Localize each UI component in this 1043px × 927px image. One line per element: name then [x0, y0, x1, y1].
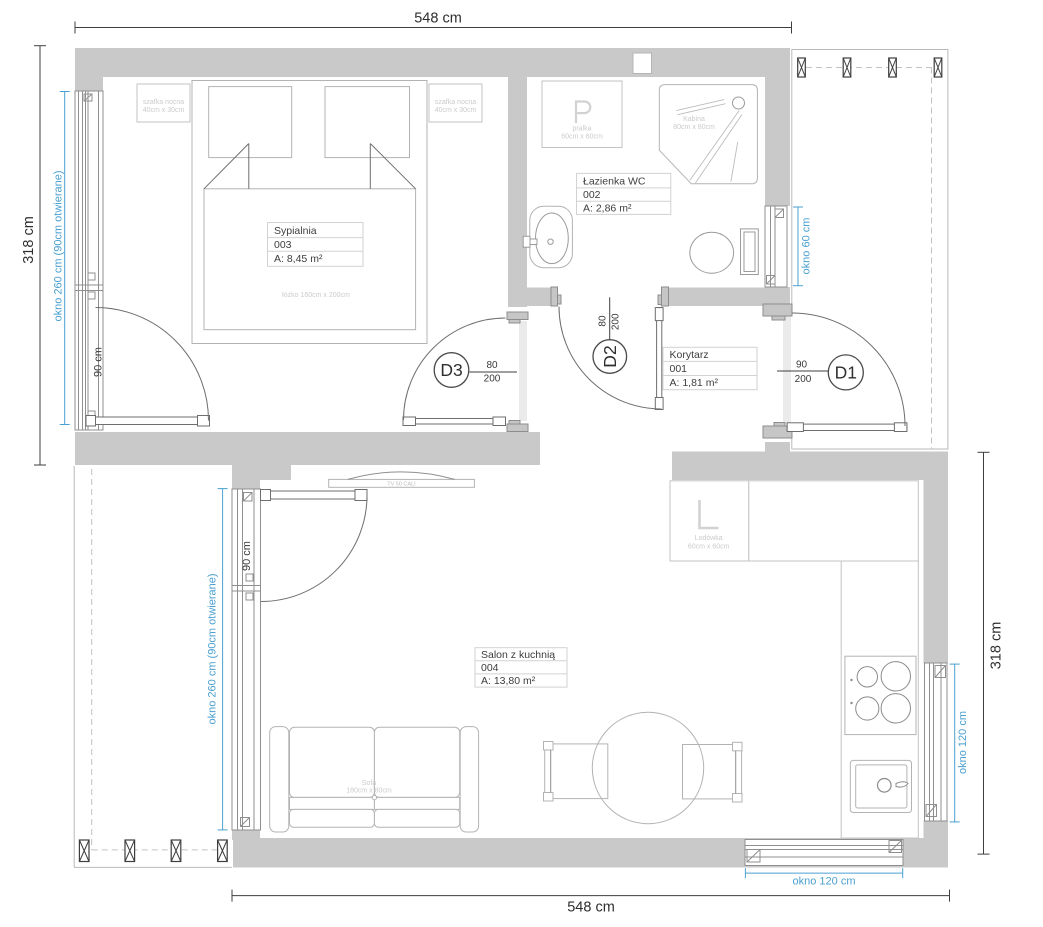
svg-text:200: 200 — [795, 374, 812, 385]
svg-text:okno 60 cm: okno 60 cm — [801, 218, 813, 275]
svg-text:003: 003 — [274, 239, 292, 251]
svg-text:szafka nocna: szafka nocna — [435, 99, 476, 106]
svg-text:A: 2,86 m²: A: 2,86 m² — [583, 203, 632, 215]
svg-text:pralka: pralka — [572, 126, 591, 133]
svg-text:90: 90 — [796, 359, 808, 370]
svg-text:okno 120 cm: okno 120 cm — [793, 876, 856, 888]
svg-text:002: 002 — [583, 189, 601, 201]
svg-text:okno 260 cm (90cm otwierane): okno 260 cm (90cm otwierane) — [207, 573, 219, 724]
svg-text:318 cm: 318 cm — [21, 216, 37, 264]
svg-text:Sofa: Sofa — [362, 780, 377, 787]
svg-text:80cm x 80cm: 80cm x 80cm — [673, 124, 715, 131]
svg-text:Sypialnia: Sypialnia — [274, 225, 317, 237]
svg-text:D1: D1 — [835, 363, 857, 383]
svg-text:A: 1,81 m²: A: 1,81 m² — [670, 377, 719, 389]
svg-text:40cm x 30cm: 40cm x 30cm — [143, 107, 185, 114]
svg-text:Łazienka WC: Łazienka WC — [583, 176, 646, 188]
svg-text:Korytarz: Korytarz — [670, 349, 709, 361]
svg-text:548 cm: 548 cm — [414, 11, 462, 27]
svg-text:A: 13,80 m²: A: 13,80 m² — [481, 675, 536, 687]
svg-text:Lodówka: Lodówka — [695, 535, 723, 542]
svg-text:okno 260 cm (90cm otwierane): okno 260 cm (90cm otwierane) — [53, 170, 65, 321]
svg-text:Kabina: Kabina — [683, 116, 705, 123]
svg-text:TV 50 CALI: TV 50 CALI — [387, 482, 416, 488]
svg-text:łóżko 160cm x 200cm: łóżko 160cm x 200cm — [282, 292, 350, 299]
svg-text:318 cm: 318 cm — [989, 622, 1005, 670]
svg-text:D3: D3 — [440, 360, 462, 380]
svg-text:004: 004 — [481, 662, 499, 674]
svg-text:Salon z kuchnią: Salon z kuchnią — [481, 649, 555, 661]
svg-text:okno 120 cm: okno 120 cm — [957, 711, 969, 774]
svg-text:60cm x 60cm: 60cm x 60cm — [688, 544, 730, 551]
svg-text:90 cm: 90 cm — [93, 347, 105, 377]
svg-text:A: 8,45 m²: A: 8,45 m² — [274, 253, 323, 265]
svg-text:548 cm: 548 cm — [567, 900, 615, 916]
svg-text:90 cm: 90 cm — [241, 541, 253, 571]
svg-text:80: 80 — [486, 360, 498, 371]
svg-text:001: 001 — [670, 363, 688, 375]
svg-text:szafka nocna: szafka nocna — [143, 99, 184, 106]
svg-text:200: 200 — [484, 374, 501, 385]
svg-text:D2: D2 — [600, 345, 620, 367]
svg-text:180cm x 80cm: 180cm x 80cm — [346, 788, 392, 795]
svg-text:200: 200 — [611, 313, 622, 330]
svg-text:80: 80 — [598, 315, 609, 327]
svg-text:40cm x 30cm: 40cm x 30cm — [435, 107, 477, 114]
svg-text:60cm x 60cm: 60cm x 60cm — [561, 134, 603, 141]
